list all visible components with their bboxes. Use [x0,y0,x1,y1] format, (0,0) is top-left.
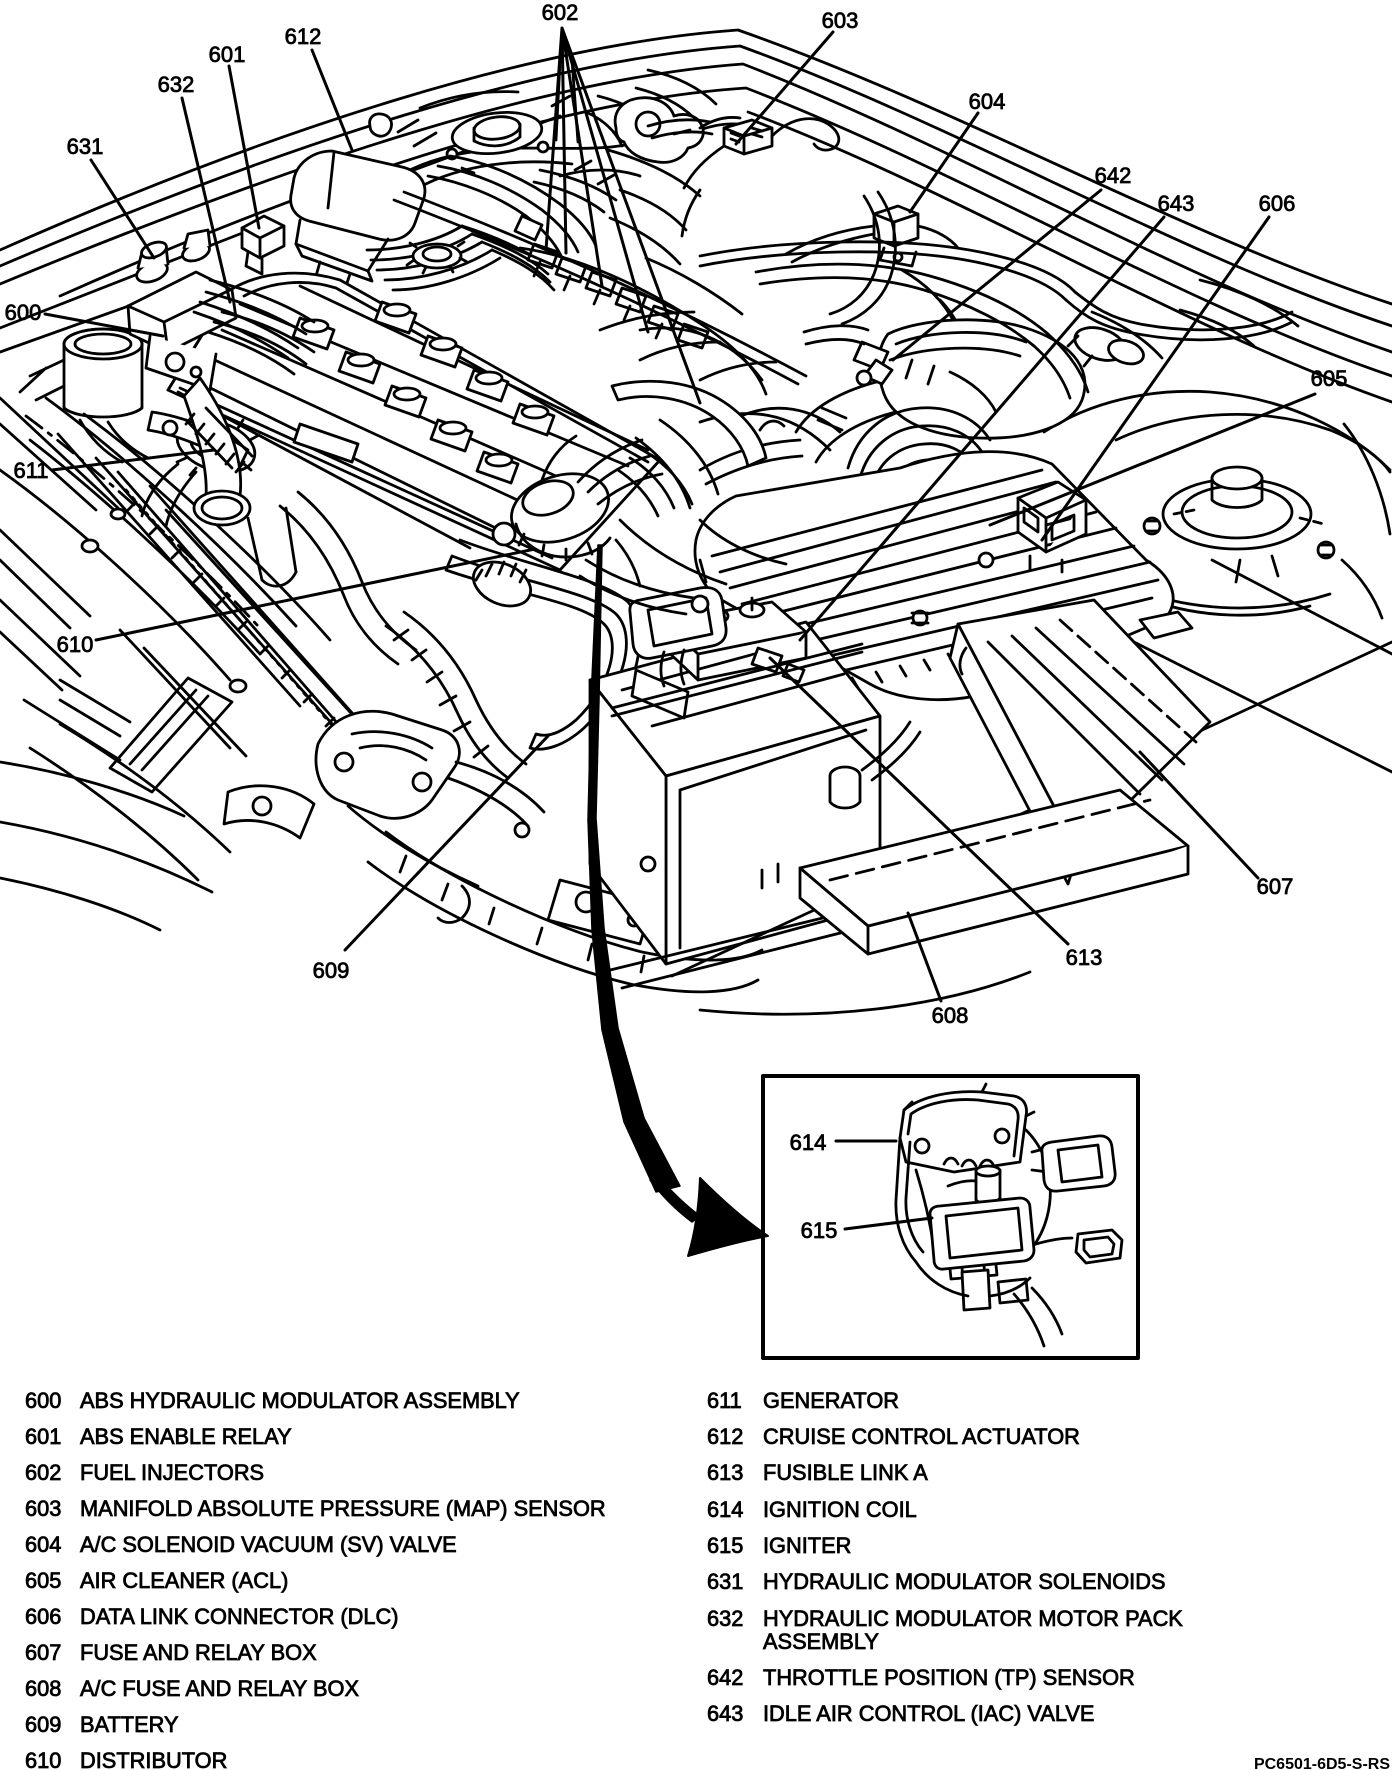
svg-text:607: 607 [1257,874,1294,899]
svg-text:PC6501-6D5-S-RS: PC6501-6D5-S-RS [1254,1756,1390,1770]
svg-text:IDLE AIR CONTROL (IAC) VALVE: IDLE AIR CONTROL (IAC) VALVE [763,1701,1094,1726]
svg-text:FUSE AND RELAY BOX: FUSE AND RELAY BOX [80,1640,317,1665]
svg-text:642: 642 [1095,163,1132,188]
svg-text:610: 610 [25,1748,61,1770]
svg-text:632: 632 [707,1606,743,1631]
svg-text:631: 631 [707,1569,743,1594]
svg-text:609: 609 [25,1712,61,1737]
svg-text:603: 603 [25,1496,61,1521]
svg-text:609: 609 [313,958,350,983]
svg-text:ABS HYDRAULIC MODULATOR ASSEMB: ABS HYDRAULIC MODULATOR ASSEMBLY [80,1388,520,1413]
svg-text:615: 615 [801,1218,838,1243]
svg-text:A/C SOLENOID VACUUM (SV) VALVE: A/C SOLENOID VACUUM (SV) VALVE [80,1532,457,1557]
svg-text:601: 601 [209,42,246,67]
svg-text:608: 608 [25,1676,61,1701]
svg-text:614: 614 [790,1130,827,1155]
svg-text:601: 601 [25,1424,61,1449]
svg-text:BATTERY: BATTERY [80,1712,179,1737]
svg-text:606: 606 [25,1604,61,1629]
svg-text:600: 600 [25,1388,61,1413]
svg-text:ABS ENABLE RELAY: ABS ENABLE RELAY [80,1424,292,1449]
svg-text:FUSIBLE LINK A: FUSIBLE LINK A [763,1460,928,1485]
svg-text:607: 607 [25,1640,61,1665]
svg-text:605: 605 [1311,366,1348,391]
svg-text:613: 613 [1066,945,1103,970]
svg-text:608: 608 [932,1003,969,1028]
svg-text:632: 632 [158,72,195,97]
svg-text:605: 605 [25,1568,61,1593]
svg-text:614: 614 [707,1497,743,1522]
svg-text:602: 602 [542,0,579,25]
svg-text:HYDRAULIC MODULATOR MOTOR PACK: HYDRAULIC MODULATOR MOTOR PACK [763,1606,1183,1631]
svg-text:603: 603 [822,8,859,33]
svg-text:DISTRIBUTOR: DISTRIBUTOR [80,1748,227,1770]
svg-text:602: 602 [25,1460,61,1485]
svg-text:604: 604 [969,89,1006,114]
svg-text:615: 615 [707,1533,743,1558]
svg-text:611: 611 [707,1388,742,1413]
svg-text:612: 612 [707,1424,743,1449]
svg-text:642: 642 [707,1665,743,1690]
svg-text:611: 611 [13,458,48,483]
svg-text:GENERATOR: GENERATOR [763,1388,899,1413]
svg-text:AIR CLEANER (ACL): AIR CLEANER (ACL) [80,1568,288,1593]
svg-text:604: 604 [25,1532,61,1557]
svg-text:FUEL INJECTORS: FUEL INJECTORS [80,1460,264,1485]
svg-text:600: 600 [5,300,42,325]
svg-text:A/C FUSE AND RELAY BOX: A/C FUSE AND RELAY BOX [80,1676,359,1701]
svg-text:HYDRAULIC MODULATOR SOLENOIDS: HYDRAULIC MODULATOR SOLENOIDS [763,1569,1166,1594]
svg-text:643: 643 [1158,191,1195,216]
svg-text:CRUISE CONTROL ACTUATOR: CRUISE CONTROL ACTUATOR [763,1424,1080,1449]
svg-text:606: 606 [1259,191,1296,216]
svg-text:613: 613 [707,1460,743,1485]
svg-text:MANIFOLD ABSOLUTE PRESSURE (MA: MANIFOLD ABSOLUTE PRESSURE (MAP) SENSOR [80,1496,606,1521]
svg-text:IGNITION COIL: IGNITION COIL [763,1497,917,1522]
svg-text:THROTTLE POSITION (TP) SENSOR: THROTTLE POSITION (TP) SENSOR [763,1665,1135,1690]
svg-text:631: 631 [67,134,104,159]
svg-text:ASSEMBLY: ASSEMBLY [763,1629,879,1654]
svg-text:DATA LINK CONNECTOR (DLC): DATA LINK CONNECTOR (DLC) [80,1604,399,1629]
svg-text:IGNITER: IGNITER [763,1533,851,1558]
svg-text:612: 612 [285,24,322,49]
svg-text:643: 643 [707,1701,743,1726]
svg-text:610: 610 [57,632,94,657]
